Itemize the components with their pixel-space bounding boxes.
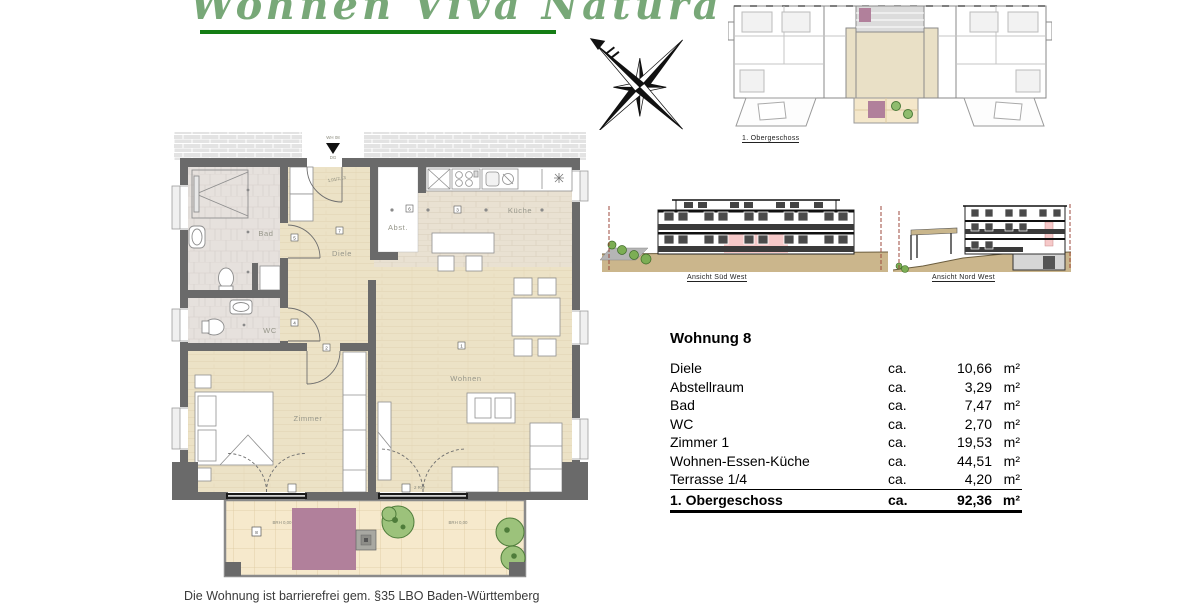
row-ca: ca. bbox=[888, 415, 932, 434]
marker-1: 1 bbox=[460, 344, 463, 349]
row-value: 7,47 bbox=[932, 396, 992, 415]
row-value: 10,66 bbox=[932, 359, 992, 378]
row-ca: ca. bbox=[888, 433, 932, 452]
row-ca: ca. bbox=[888, 359, 932, 378]
terrace-awning bbox=[292, 508, 356, 570]
table-row: Diele ca. 10,66 m² bbox=[670, 359, 1022, 378]
room-label-abst: Abst. bbox=[388, 223, 408, 232]
row-ca: ca. bbox=[888, 452, 932, 471]
overview-caption: 1. Obergeschoss bbox=[742, 135, 799, 143]
terrace-plant bbox=[382, 506, 414, 538]
marker-6: 6 bbox=[408, 207, 411, 212]
table-row: Zimmer 1 ca. 19,53 m² bbox=[670, 433, 1022, 452]
building-overview-plan bbox=[728, 0, 1052, 132]
bad-sink-icon bbox=[189, 226, 205, 248]
washer bbox=[260, 266, 280, 290]
room-label-zimmer: Zimmer bbox=[293, 414, 322, 423]
compass-north-arrow-icon bbox=[588, 30, 688, 130]
row-unit: m² bbox=[992, 359, 1020, 378]
total-label: 1. Obergeschoss bbox=[670, 490, 888, 510]
marker-2: 2 bbox=[325, 346, 328, 351]
row-value: 44,51 bbox=[932, 452, 992, 471]
row-unit: m² bbox=[992, 415, 1020, 434]
main-floor-plan: WH 08 DG BRH 0,00 BRH 0,00 8 bbox=[170, 130, 590, 580]
brh-label-right: BRH 0,00 bbox=[448, 520, 468, 525]
row-unit: m² bbox=[992, 470, 1020, 489]
wc-sink-icon bbox=[230, 300, 252, 314]
row-label: Bad bbox=[670, 396, 888, 415]
total-unit: m² bbox=[992, 490, 1020, 510]
row-label: WC bbox=[670, 415, 888, 434]
logo-script-text: Wohnen Viva Natura bbox=[190, 0, 723, 29]
marker-4: 4 bbox=[293, 321, 296, 326]
marker-7: 7 bbox=[338, 229, 341, 234]
row-value: 2,70 bbox=[932, 415, 992, 434]
brh-label-left: BRH 0,00 bbox=[272, 520, 292, 525]
row-value: 4,20 bbox=[932, 470, 992, 489]
room-label-wohnen: Wohnen bbox=[450, 374, 481, 383]
marker-3: 3 bbox=[456, 208, 459, 213]
total-value: 92,36 bbox=[932, 490, 992, 510]
total-ca: ca. bbox=[888, 490, 932, 510]
table-total-row: 1. Obergeschoss ca. 92,36 m² bbox=[670, 490, 1022, 513]
table-row: WC ca. 2,70 m² bbox=[670, 415, 1022, 434]
rw-label: 2 RW bbox=[414, 485, 426, 490]
room-label-wc: WC bbox=[263, 326, 277, 335]
table-title: Wohnung 8 bbox=[670, 330, 1022, 347]
row-label: Abstellraum bbox=[670, 378, 888, 397]
marker-8: 8 bbox=[255, 530, 258, 535]
entry-label-bottom: DG bbox=[330, 155, 337, 160]
elevator bbox=[859, 8, 871, 22]
row-ca: ca. bbox=[888, 470, 932, 489]
row-label: Diele bbox=[670, 359, 888, 378]
elevation-southwest-caption: Ansicht Süd West bbox=[687, 274, 747, 282]
sink-icon bbox=[482, 169, 518, 189]
row-unit: m² bbox=[992, 452, 1020, 471]
wardrobe bbox=[343, 352, 366, 492]
row-label: Zimmer 1 bbox=[670, 433, 888, 452]
compass-arrowhead bbox=[590, 38, 605, 50]
row-unit: m² bbox=[992, 396, 1020, 415]
disclaimer-text: Die Wohnung ist barrierefrei gem. §35 LB… bbox=[184, 589, 540, 603]
row-label: Wohnen-Essen-Küche bbox=[670, 452, 888, 471]
table-row: Abstellraum ca. 3,29 m² bbox=[670, 378, 1022, 397]
logo-underline-bar bbox=[200, 30, 556, 34]
room-label-bad: Bad bbox=[258, 229, 273, 238]
cooktop-icon bbox=[452, 169, 480, 189]
table-row: Bad ca. 7,47 m² bbox=[670, 396, 1022, 415]
room-label-diele: Diele bbox=[332, 249, 352, 258]
light-icon bbox=[554, 173, 564, 183]
elevation-northwest-caption: Ansicht Nord West bbox=[932, 274, 995, 282]
elevation-northwest bbox=[893, 196, 1078, 274]
row-value: 3,29 bbox=[932, 378, 992, 397]
kitchen-counter bbox=[426, 167, 572, 191]
entry-label-top: WH 08 bbox=[326, 135, 340, 140]
bad-toilet-icon bbox=[219, 268, 234, 291]
wc-toilet-icon bbox=[202, 319, 224, 335]
common-corridor bbox=[174, 132, 586, 160]
table-row: Terrasse 1/4 ca. 4,20 m² bbox=[670, 470, 1022, 490]
terrace: BRH 0,00 BRH 0,00 8 bbox=[225, 500, 525, 576]
room-label-kueche: Küche bbox=[508, 206, 532, 215]
row-unit: m² bbox=[992, 433, 1020, 452]
elevation-southwest bbox=[600, 196, 890, 274]
area-table: Wohnung 8 Diele ca. 10,66 m² Abstellraum… bbox=[670, 330, 1022, 513]
entry-closet bbox=[290, 167, 313, 221]
row-value: 19,53 bbox=[932, 433, 992, 452]
marker-5: 5 bbox=[293, 236, 296, 241]
row-ca: ca. bbox=[888, 378, 932, 397]
table-row: Wohnen-Essen-Küche ca. 44,51 m² bbox=[670, 452, 1022, 471]
row-label: Terrasse 1/4 bbox=[670, 470, 888, 489]
row-ca: ca. bbox=[888, 396, 932, 415]
row-unit: m² bbox=[992, 378, 1020, 397]
